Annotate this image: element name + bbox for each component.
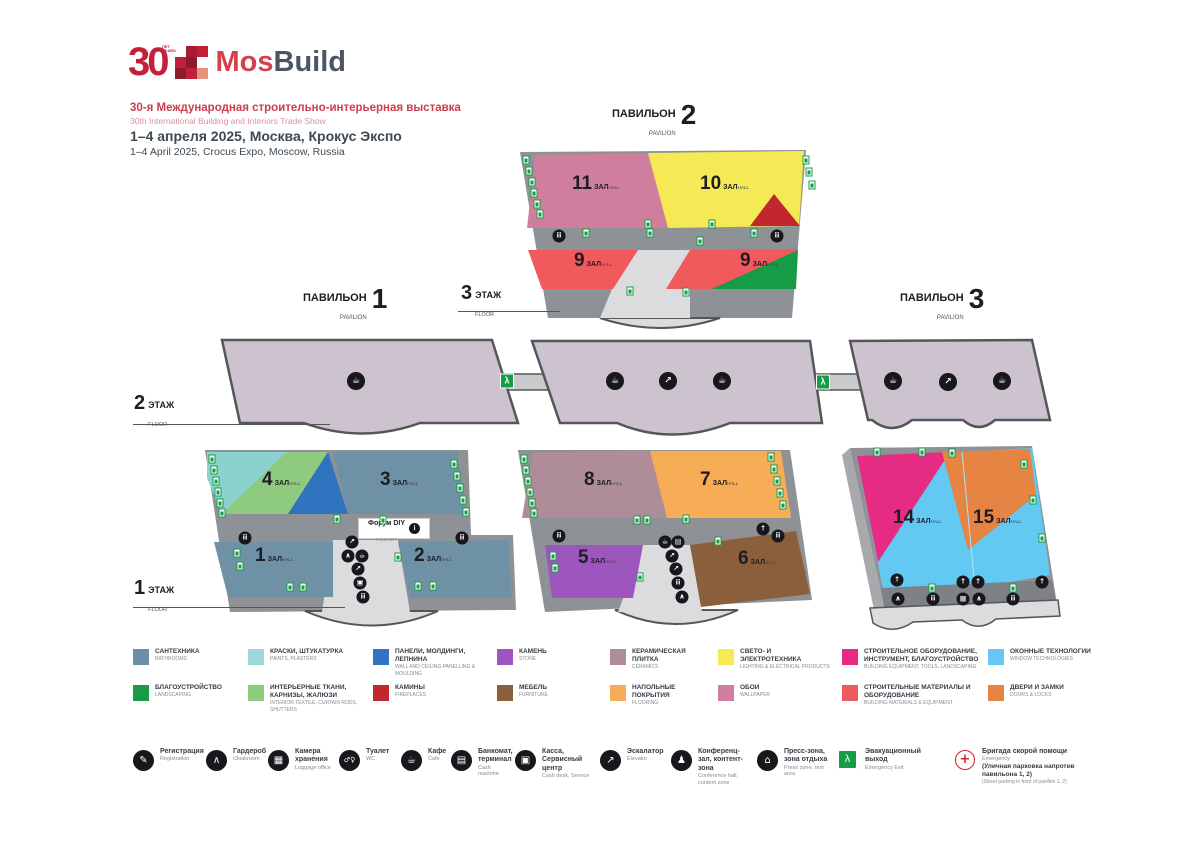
emergency-exit-marker <box>1039 534 1046 543</box>
toilet-icon: ii <box>771 230 784 243</box>
emergency-exit-marker <box>771 465 778 474</box>
show-dates-en: 1–4 April 2025, Crocus Expo, Moscow, Rus… <box>130 146 345 158</box>
color-swatch <box>718 649 734 665</box>
emergency-exit-marker <box>380 516 387 525</box>
up-arrow-icon: ↑ <box>957 576 970 589</box>
emergency-exit-marker <box>300 583 307 592</box>
pavilion-3-label: ПАВИЛЬОНPAVILION 3 <box>900 288 984 324</box>
conference-icon: ♟ <box>671 750 692 771</box>
hall-14-label: 14ЗАЛHALL <box>893 510 942 528</box>
atm-icon: ▤ <box>672 536 685 549</box>
emergency-exit-marker <box>751 229 758 238</box>
color-swatch <box>373 649 389 665</box>
emergency-exit-marker <box>523 466 530 475</box>
emergency-exit-icon: λ <box>838 750 857 769</box>
emergency-exit-marker <box>460 496 467 505</box>
emergency-exit-marker <box>451 460 458 469</box>
cafe-icon: ☕ <box>356 550 369 563</box>
floor-3-label: 3 ЭТАЖFLOOR <box>461 285 501 321</box>
legend-column: СТРОИТЕЛЬНОЕ ОБОРУДОВАНИЕ, ИНСТРУМЕНТ, Б… <box>842 648 982 720</box>
hall-1-label: 1ЗАЛHALL <box>255 548 293 566</box>
legend-item-panels: ПАНЕЛИ, МОЛДИНГИ, ЛЕПНИНАWALL AND CEILIN… <box>373 648 491 678</box>
legend-item-building-materials: СТРОИТЕЛЬНЫЕ МАТЕРИАЛЫ И ОБОРУДОВАНИЕBUI… <box>842 684 982 714</box>
color-swatch <box>497 649 513 665</box>
service-cloakroom: ∧ ГардеробCloakroom <box>206 748 276 763</box>
hall-3-label: 3ЗАЛHALL <box>380 472 418 490</box>
legend-item-stone: КАМЕНЬSTONE <box>497 648 602 678</box>
emergency-exit-marker <box>415 582 422 591</box>
color-swatch <box>718 685 734 701</box>
legend-item-fireplaces: КАМИНЫFIREPLACES <box>373 684 491 714</box>
cafe-icon: ☕ <box>884 372 902 390</box>
up-arrow-icon: ↑ <box>891 574 904 587</box>
service-cash-desk: ▣ Касса, Сервисный центрCash desk, Servi… <box>515 748 595 780</box>
emergency-exit-marker <box>777 489 784 498</box>
escalator-icon: ↗ <box>670 563 683 576</box>
cafe-icon: ☕ <box>347 372 365 390</box>
service-cafe: ☕ КафеCafe <box>401 748 446 763</box>
emergency-exit-marker <box>697 237 704 246</box>
cafe-icon: ☕ <box>993 372 1011 390</box>
service-luggage: ▦ Камера храненияLuggage office <box>268 748 343 771</box>
emergency-exit-marker <box>919 448 926 457</box>
show-title-ru: 30-я Международная строительно-интерьерн… <box>130 102 461 114</box>
brand-wordmark: MosBuild <box>216 48 347 77</box>
emergency-exit-marker <box>523 156 530 165</box>
hall-5-label: 5ЗАЛHALL <box>578 550 616 568</box>
emergency-exit-marker <box>219 509 226 518</box>
legend-item-building-equipment: СТРОИТЕЛЬНОЕ ОБОРУДОВАНИЕ, ИНСТРУМЕНТ, Б… <box>842 648 982 678</box>
service-first-aid: + Бригада скорой помощи Emergency (Уличн… <box>955 748 1080 785</box>
emergency-exit-marker <box>644 516 651 525</box>
emergency-exit-marker <box>806 168 813 177</box>
luggage-icon: ▦ <box>268 750 289 771</box>
emergency-exit-marker <box>645 220 652 229</box>
legend-item-lighting: СВЕТО- И ЭЛЕКТРОТЕХНИКАLIGHTING & ELECTR… <box>718 648 833 678</box>
cloakroom-icon: ∧ <box>973 593 986 606</box>
cafe-icon: ☕ <box>713 372 731 390</box>
legend-item-textile: ИНТЕРЬЕРНЫЕ ТКАНИ, КАРНИЗЫ, ЖАЛЮЗИINTERI… <box>248 684 368 714</box>
pavilion-2-label: ПАВИЛЬОНPAVILION 2 <box>612 104 696 140</box>
legend-item-window-technologies: ОКОННЫЕ ТЕХНОЛОГИИWINDOW TECHNOLOGIES <box>988 648 1093 678</box>
emergency-exit-marker <box>1030 496 1037 505</box>
cloakroom-icon: ∧ <box>676 591 689 604</box>
emergency-exit-marker <box>234 549 241 558</box>
emergency-exit-marker <box>1021 460 1028 469</box>
emergency-exit-marker <box>634 516 641 525</box>
hall-9-label: 9ЗАЛHALL <box>740 253 778 271</box>
emergency-exit-marker <box>683 515 690 524</box>
color-swatch <box>133 685 149 701</box>
service-cash-machine: ▤ Банкомат, терминалCash machine <box>451 748 513 778</box>
emergency-exit-marker <box>211 466 218 475</box>
color-swatch <box>842 685 858 701</box>
emergency-exit-marker <box>217 499 224 508</box>
emergency-exit-marker <box>715 537 722 546</box>
legend-column: САНТЕХНИКАBATHROOMS БЛАГОУСТРОЙСТВОLANDS… <box>133 648 243 720</box>
hall-8-label: 8ЗАЛHALL <box>584 472 622 490</box>
emergency-exit-marker <box>780 501 787 510</box>
emergency-exit-marker <box>537 210 544 219</box>
toilet-icon: ii <box>456 532 469 545</box>
pavilion3-floor1 <box>842 446 1060 629</box>
cloakroom-icon: ∧ <box>342 550 355 563</box>
color-swatch <box>988 649 1004 665</box>
service-conference: ♟ Конференц-зал, контент-зонаConference … <box>671 748 751 786</box>
emergency-exit-marker <box>237 562 244 571</box>
emergency-exit-marker <box>213 477 220 486</box>
hall-4-label: 4ЗАЛHALL <box>262 472 300 490</box>
hall-6-label: 6ЗАЛHALL <box>738 551 776 569</box>
emergency-exit-marker <box>395 553 402 562</box>
cash-desk-icon: ▣ <box>354 577 367 590</box>
emergency-exit-marker <box>874 448 881 457</box>
hall-10-label: 10ЗАЛHALL <box>700 176 749 194</box>
pavilion-1-label: ПАВИЛЬОНPAVILION 1 <box>303 288 387 324</box>
emergency-exit-marker <box>1010 584 1017 593</box>
emergency-exit-marker <box>627 287 634 296</box>
hall-11-label: 11ЗАЛHALL <box>572 176 620 194</box>
toilet-icon: ii <box>239 532 252 545</box>
mosbuild-logo: 30 ЛЕТYEARS MosBuild <box>128 44 346 80</box>
emergency-exit-marker <box>637 573 644 582</box>
emergency-exit-marker <box>552 564 559 573</box>
emergency-exit-marker <box>463 508 470 517</box>
emergency-exit-marker <box>768 453 775 462</box>
floor-2-label: 2 ЭТАЖFLOOR <box>134 395 174 431</box>
hall-7-label: 7ЗАЛHALL <box>700 472 738 490</box>
color-swatch <box>610 685 626 701</box>
rest-area-icon: ⌂ <box>757 750 778 771</box>
forum-diy-box: Форум DIYForum DIY i <box>358 518 430 539</box>
info-icon: i <box>409 523 420 534</box>
legend-item-furniture: МЕБЕЛЬFURNITURE <box>497 684 602 714</box>
pavilion1-floor2 <box>222 340 518 434</box>
legend-item-landscaping: БЛАГОУСТРОЙСТВОLANDSCAPING <box>133 684 243 714</box>
legend-item-paints: КРАСКИ, ШТУКАТУРКАPAINTS, PLASTERS <box>248 648 368 678</box>
atm-icon: ▤ <box>451 750 472 771</box>
emergency-exit-marker <box>527 488 534 497</box>
up-arrow-icon: ↑ <box>757 523 770 536</box>
escalator-icon: ↗ <box>352 563 365 576</box>
legend-column: КЕРАМИЧЕСКАЯ ПЛИТКАCERAMICS НАПОЛЬНЫЕ ПО… <box>610 648 710 720</box>
up-arrow-icon: ↑ <box>1036 576 1049 589</box>
color-swatch <box>133 649 149 665</box>
emergency-exit-icon: λ <box>500 374 514 389</box>
legend-column: СВЕТО- И ЭЛЕКТРОТЕХНИКАLIGHTING & ELECTR… <box>718 648 833 720</box>
toilet-icon: ii <box>553 530 566 543</box>
color-swatch <box>610 649 626 665</box>
service-registration: ✎ РегистрацияRegistration <box>133 748 213 763</box>
color-swatch <box>988 685 1004 701</box>
emergency-exit-marker <box>529 499 536 508</box>
hall-2-label: 2ЗАЛHALL <box>414 548 452 566</box>
escalator-icon: ↗ <box>659 372 677 390</box>
emergency-exit-marker <box>583 229 590 238</box>
legend-item-doors-locks: ДВЕРИ И ЗАМКИDOORS & LOCKS <box>988 684 1093 714</box>
service-wc: ♂♀ ТуалетWC <box>339 748 394 763</box>
emergency-exit-marker <box>550 552 557 561</box>
legend-item-bathrooms: САНТЕХНИКАBATHROOMS <box>133 648 243 678</box>
emergency-exit-marker <box>334 515 341 524</box>
escalator-icon: ↗ <box>600 750 621 771</box>
emergency-exit-marker <box>803 156 810 165</box>
cafe-icon: ☕ <box>659 536 672 549</box>
show-dates-ru: 1–4 апреля 2025, Москва, Крокус Экспо <box>130 128 402 144</box>
cloakroom-icon: ∧ <box>206 750 227 771</box>
toilet-icon: ii <box>927 593 940 606</box>
logo-30-number: 30 <box>128 44 167 80</box>
emergency-exit-marker <box>809 181 816 190</box>
hall-9-label: 9ЗАЛHALL <box>574 253 612 271</box>
color-swatch <box>248 685 264 701</box>
first-aid-icon: + <box>955 750 975 770</box>
legend-item-wallpaper: ОБОИWALLPAPER <box>718 684 833 714</box>
registration-icon: ✎ <box>133 750 154 771</box>
color-swatch <box>842 649 858 665</box>
emergency-exit-marker <box>525 477 532 486</box>
color-swatch <box>497 685 513 701</box>
show-title-en: 30th International Building and Interior… <box>130 116 326 126</box>
pavilion2-floor2 <box>532 341 822 435</box>
cash-desk-icon: ▣ <box>515 750 536 771</box>
toilet-icon: ii <box>357 591 370 604</box>
emergency-exit-marker <box>215 488 222 497</box>
legend-column: КРАСКИ, ШТУКАТУРКАPAINTS, PLASTERS ИНТЕР… <box>248 648 368 720</box>
emergency-exit-marker <box>949 449 956 458</box>
emergency-exit-icon: λ <box>816 375 830 390</box>
emergency-exit-marker <box>526 167 533 176</box>
emergency-exit-marker <box>647 229 654 238</box>
luggage-icon: ▦ <box>957 593 970 606</box>
toilet-icon: ii <box>672 577 685 590</box>
emergency-exit-marker <box>209 455 216 464</box>
service-escalator: ↗ ЭскалаторElevator <box>600 748 660 763</box>
up-arrow-icon: ↑ <box>972 576 985 589</box>
service-emergency-exit: λ Эвакуационный выходEmergency Exit <box>838 748 913 771</box>
emergency-exit-marker <box>529 178 536 187</box>
color-swatch <box>248 649 264 665</box>
emergency-exit-marker <box>287 583 294 592</box>
emergency-exit-marker <box>454 472 461 481</box>
cloakroom-icon: ∧ <box>892 593 905 606</box>
legend-column: ОКОННЫЕ ТЕХНОЛОГИИWINDOW TECHNOLOGIES ДВ… <box>988 648 1093 720</box>
emergency-exit-marker <box>531 189 538 198</box>
emergency-exit-marker <box>709 220 716 229</box>
legend-item-ceramics: КЕРАМИЧЕСКАЯ ПЛИТКАCERAMICS <box>610 648 710 678</box>
emergency-exit-marker <box>430 582 437 591</box>
cafe-icon: ☕ <box>401 750 422 771</box>
escalator-icon: ↗ <box>939 373 957 391</box>
emergency-exit-marker <box>521 455 528 464</box>
wc-icon: ♂♀ <box>339 750 360 771</box>
service-press-zone: ⌂ Пресс-зона, зона отдыхаPress zone, res… <box>757 748 832 778</box>
legend-column: КАМЕНЬSTONE МЕБЕЛЬFURNITURE <box>497 648 602 720</box>
cafe-icon: ☕ <box>606 372 624 390</box>
logo-mosaic-icon <box>175 46 208 79</box>
escalator-icon: ↗ <box>346 536 359 549</box>
logo-years-label: ЛЕТYEARS <box>162 45 176 54</box>
toilet-icon: ii <box>1007 593 1020 606</box>
emergency-exit-marker <box>534 200 541 209</box>
toilet-icon: ii <box>553 230 566 243</box>
hall-15-label: 15ЗАЛHALL <box>973 510 1022 528</box>
emergency-exit-marker <box>683 288 690 297</box>
legend-item-flooring: НАПОЛЬНЫЕ ПОКРЫТИЯFLOORING <box>610 684 710 714</box>
emergency-exit-marker <box>531 509 538 518</box>
floor-1-label: 1 ЭТАЖFLOOR <box>134 580 174 616</box>
emergency-exit-marker <box>929 584 936 593</box>
color-swatch <box>373 685 389 701</box>
toilet-icon: ii <box>772 530 785 543</box>
emergency-exit-marker <box>457 484 464 493</box>
escalator-icon: ↗ <box>666 550 679 563</box>
mosbuild-floor-plan: 30 ЛЕТYEARS MosBuild 30-я Международная … <box>0 0 1200 848</box>
legend-column: ПАНЕЛИ, МОЛДИНГИ, ЛЕПНИНАWALL AND CEILIN… <box>373 648 491 720</box>
emergency-exit-marker <box>774 477 781 486</box>
